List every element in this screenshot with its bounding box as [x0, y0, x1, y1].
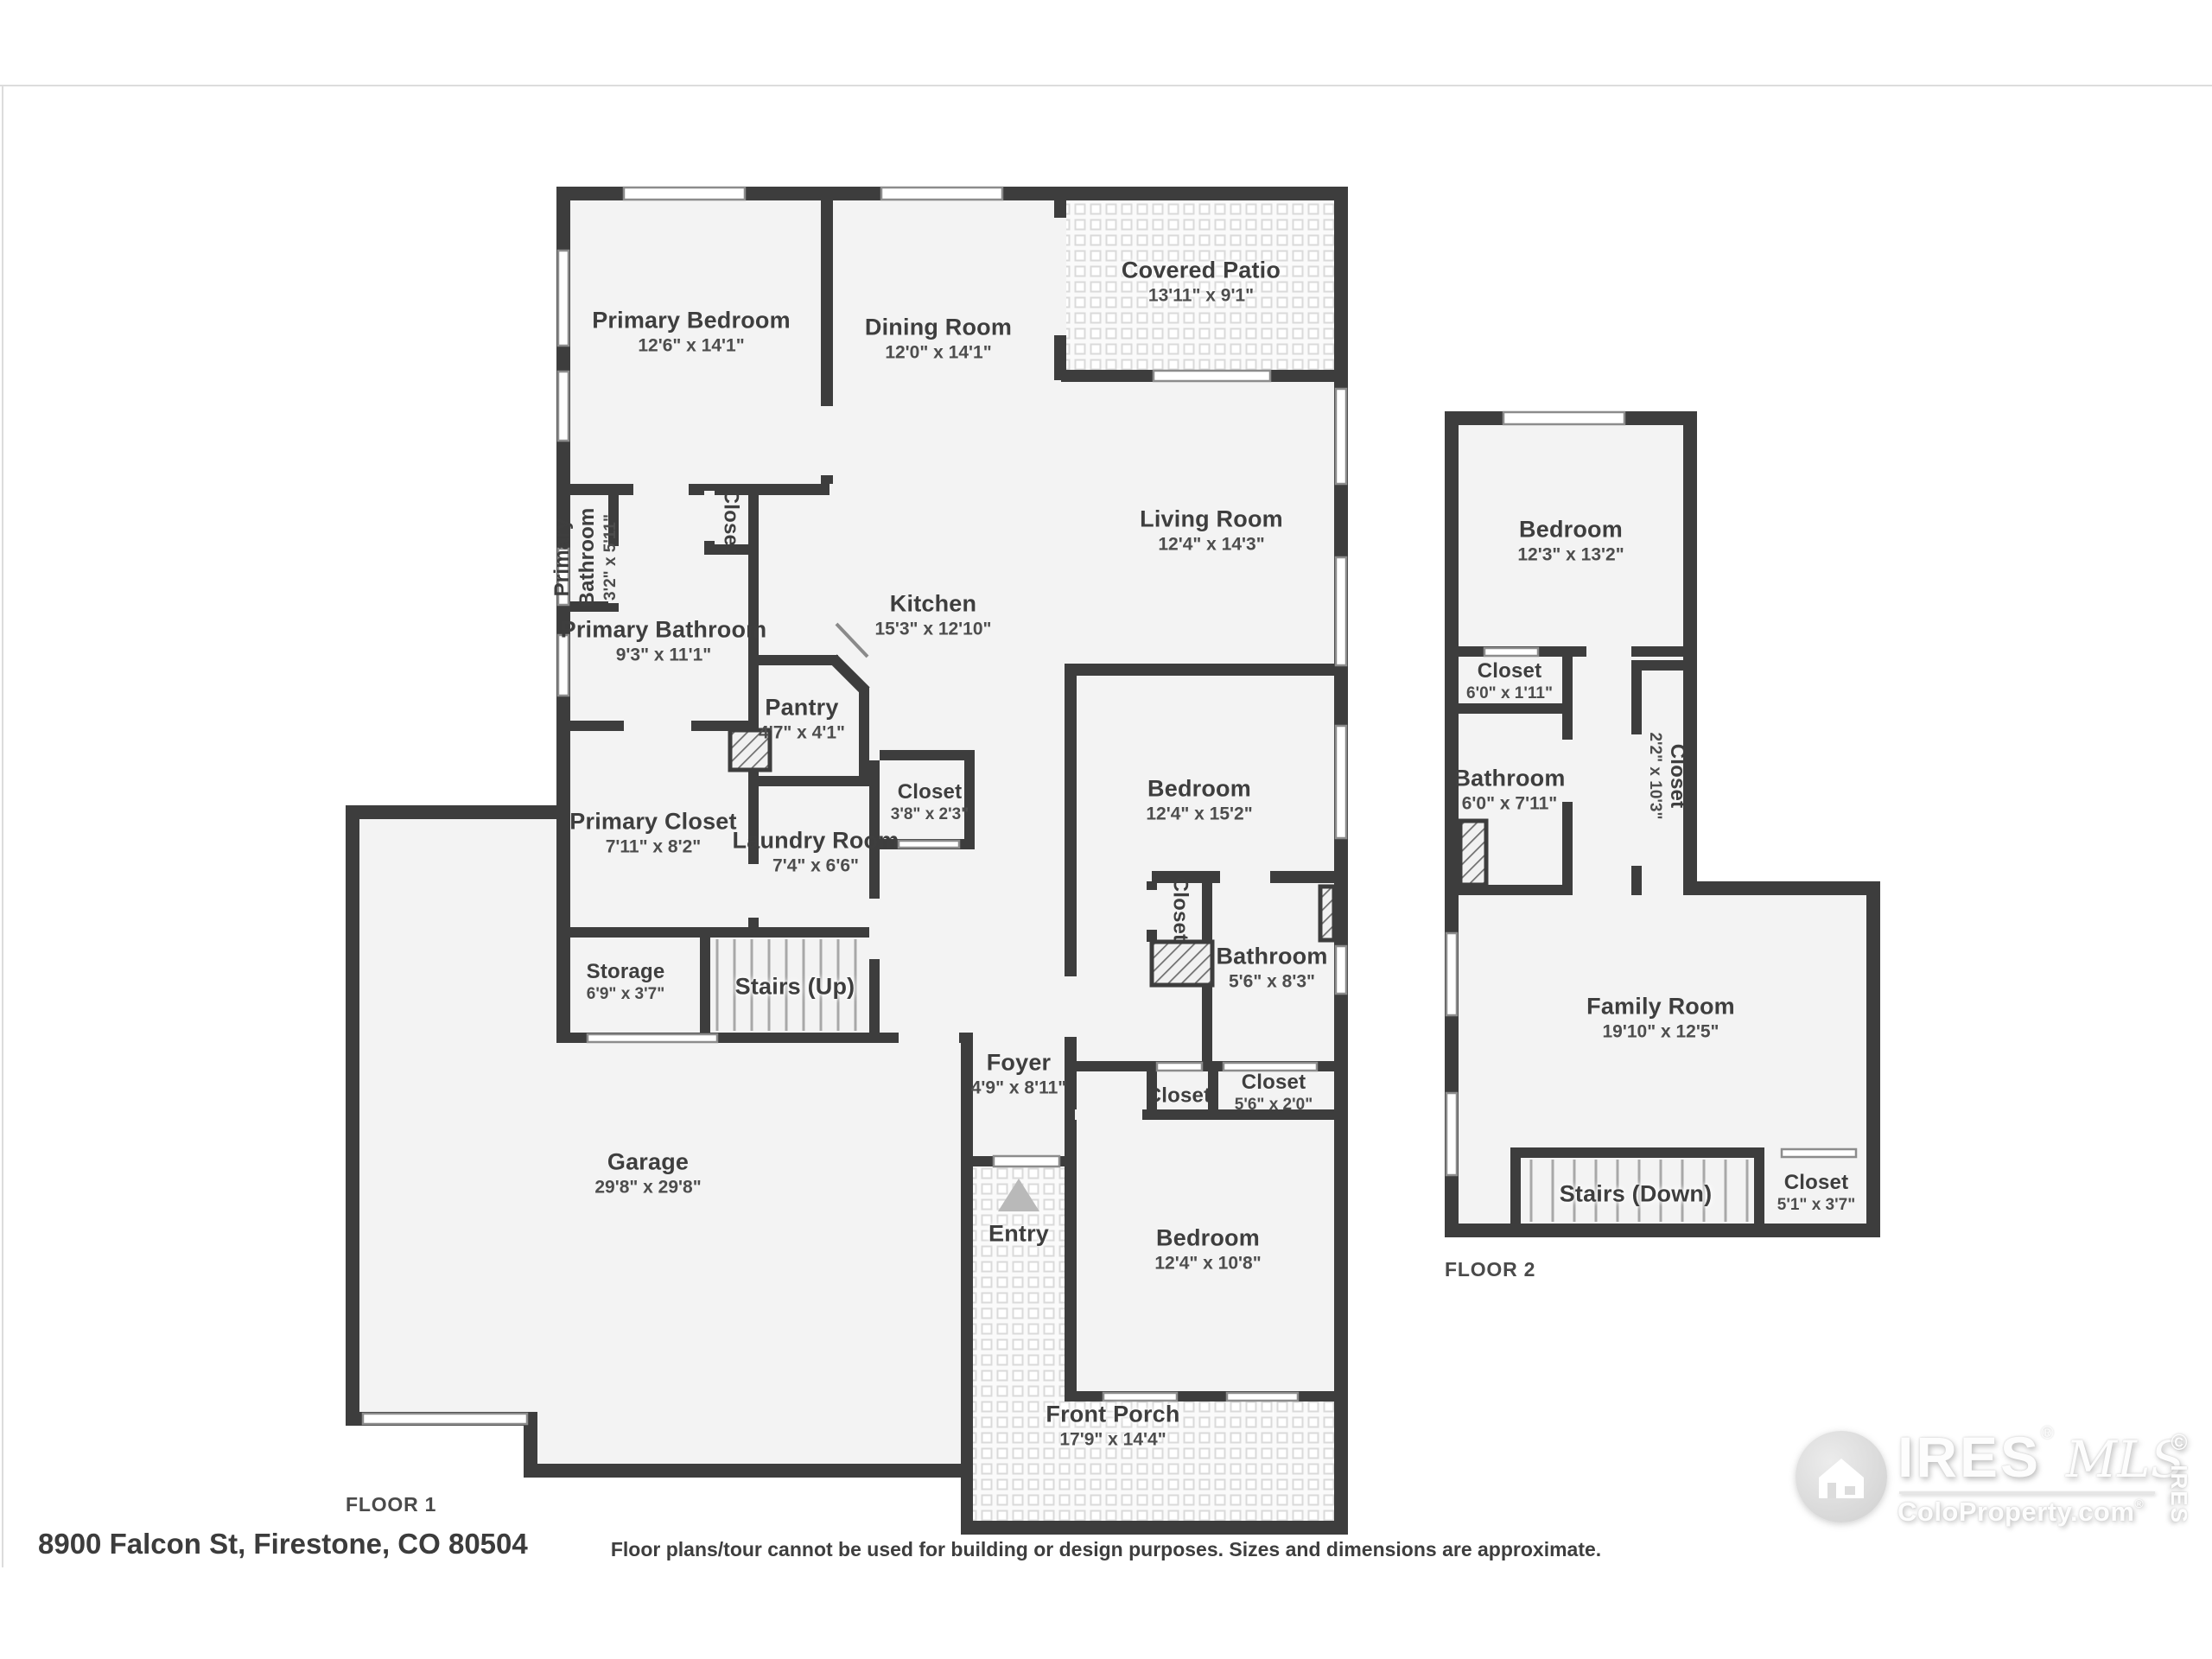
coloproperty-url: ColoProperty.com — [1897, 1497, 2134, 1527]
room-label-pantry: Pantry 4'7" x 4'1" — [759, 694, 845, 745]
ires-logo: IRES®MLS ColoProperty.com® © IRES — [1796, 1424, 2193, 1545]
floor2-silhouette — [1445, 411, 1880, 1237]
room-label-closet-hall-small: Closet — [1147, 1083, 1211, 1108]
ires-logo-text: IRES®MLS ColoProperty.com® — [1897, 1424, 2184, 1528]
room-label-foyer: Foyer 4'9" x 8'11" — [971, 1049, 1067, 1100]
room-label-closet-laundry: Closet 3'8" x 2'3" — [891, 779, 969, 824]
room-label-kitchen: Kitchen 15'3" x 12'10" — [874, 590, 991, 641]
room-label-primary-bathroom-small: Primary Bathroom 3'2" x 5'11" — [550, 480, 620, 635]
room-label-stairs-up: Stairs (Up) — [735, 973, 855, 1001]
room-label-entry: Entry — [988, 1220, 1049, 1249]
room-label-bedroom-bottom: Bedroom 12'4" x 10'8" — [1154, 1224, 1261, 1275]
room-label-f2-closet-bedroom: Closet 6'0" x 1'11" — [1466, 658, 1553, 703]
room-label-primary-closet: Primary Closet 7'11" x 8'2" — [569, 808, 736, 859]
room-label-garage: Garage 29'8" x 29'8" — [594, 1148, 701, 1199]
room-label-f2-closet-tall: Closet 2'2" x 10'3" — [1645, 732, 1690, 819]
registered-mark-2: ® — [2134, 1497, 2144, 1510]
room-label-living-room: Living Room 12'4" x 14'3" — [1140, 505, 1283, 556]
room-label-closet-bedroom-middle: Closet — [1167, 877, 1192, 942]
room-label-f2-bedroom: Bedroom 12'3" x 13'2" — [1517, 516, 1624, 567]
floor2-shower-fixture — [1460, 821, 1486, 885]
room-label-closet-hall: Closet 5'6" x 2'0" — [1235, 1070, 1313, 1115]
room-label-f2-family-room: Family Room 19'10" x 12'5" — [1586, 993, 1735, 1044]
ires-brand-text: IRES — [1897, 1425, 2041, 1489]
room-label-primary-bathroom: Primary Bathroom 9'3" x 11'1" — [561, 616, 767, 667]
room-label-dining-room: Dining Room 12'0" x 14'1" — [865, 314, 1012, 365]
room-label-f2-bathroom: Bathroom 6'0" x 7'11" — [1453, 765, 1565, 816]
ires-copyright-vertical: © IRES — [2165, 1429, 2192, 1524]
room-label-closet-primary-bedroom: Closet — [718, 489, 743, 554]
coloproperty-text: ColoProperty.com® — [1897, 1497, 2184, 1528]
room-label-storage: Storage 6'9" x 3'7" — [587, 959, 665, 1004]
room-label-f2-closet-stairs: Closet 5'1" x 3'7" — [1777, 1170, 1855, 1215]
ires-house-icon — [1796, 1431, 1887, 1522]
room-label-covered-patio: Covered Patio 13'11" x 9'1" — [1122, 257, 1281, 308]
property-address: 8900 Falcon St, Firestone, CO 80504 — [38, 1528, 528, 1560]
floor-plan-page: Primary Bedroom 12'6" x 14'1" Dining Roo… — [0, 0, 2212, 1659]
room-label-front-porch: Front Porch 17'9" x 14'4" — [1046, 1401, 1179, 1452]
room-label-laundry-room: Laundry Room 7'4" x 6'6" — [733, 827, 899, 878]
disclaimer-text: Floor plans/tour cannot be used for buil… — [501, 1538, 1711, 1561]
room-label-bedroom-middle: Bedroom 12'4" x 15'2" — [1146, 775, 1252, 826]
house-glyph-icon — [1810, 1448, 1872, 1505]
room-label-f2-stairs-down: Stairs (Down) — [1560, 1180, 1713, 1209]
room-label-primary-bedroom: Primary Bedroom 12'6" x 14'1" — [592, 307, 791, 358]
floor2-title: FLOOR 2 — [1445, 1258, 1535, 1281]
registered-mark: ® — [2041, 1424, 2054, 1443]
floor1-title: FLOOR 1 — [346, 1493, 436, 1516]
room-label-bathroom-middle: Bathroom 5'6" x 8'3" — [1216, 943, 1327, 994]
logo-divider — [1899, 1491, 2155, 1494]
